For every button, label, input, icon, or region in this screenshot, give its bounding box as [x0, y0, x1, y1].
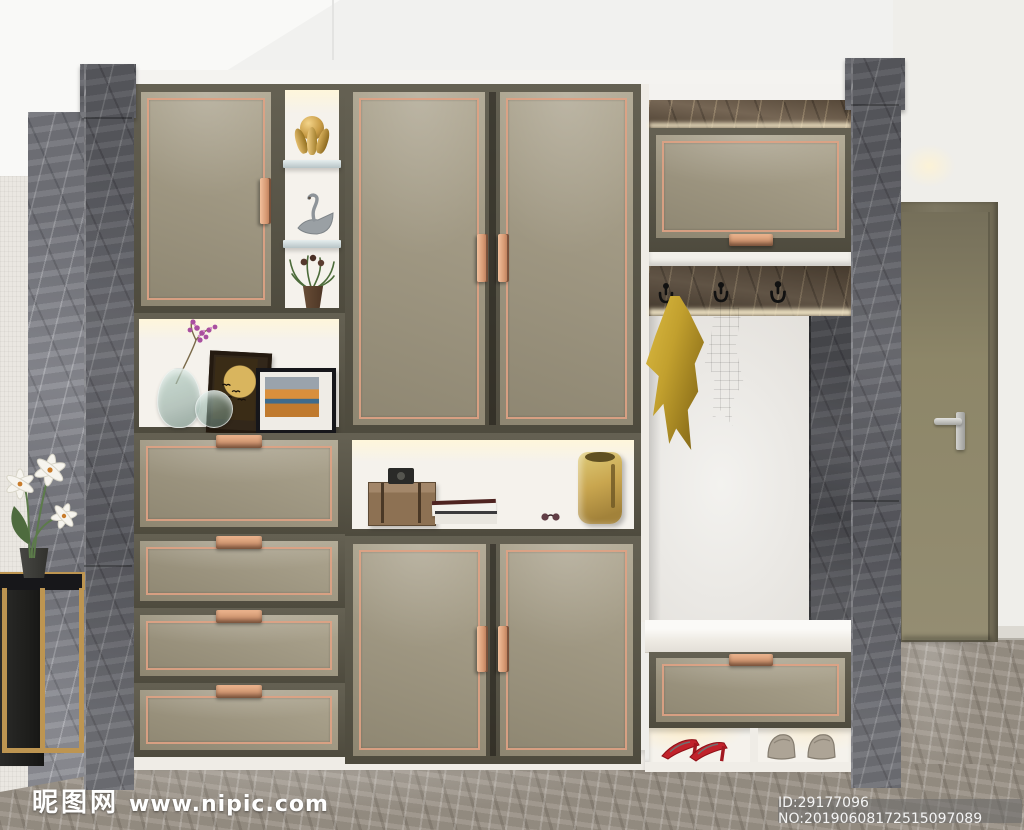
drawer-2: [140, 541, 338, 601]
glass-vase-large: [157, 368, 201, 428]
camera-lens: [397, 472, 405, 480]
bag-strap: [611, 464, 615, 508]
drawer-trim: [146, 696, 332, 744]
lower-door-gap: [490, 544, 496, 756]
white-lily-bouquet: [0, 436, 84, 560]
drawer-4-pull: [216, 685, 262, 698]
led-glow-display-top: [285, 90, 339, 114]
lower-door-right: [500, 544, 633, 756]
door-trim: [506, 98, 627, 419]
wardrobe-door-gap: [489, 92, 496, 425]
shoe-niche-base: [645, 762, 854, 772]
door-bottom-shadow: [902, 636, 992, 642]
artwork-landscape: [265, 377, 319, 417]
drawer-1-pull: [216, 435, 262, 448]
coat-hook-icon: [768, 280, 788, 308]
upper-left-door: [141, 92, 271, 306]
watermark-logo: 昵图网: [32, 782, 119, 819]
lower-door-left: [353, 544, 486, 756]
swan-figurine: [292, 192, 336, 240]
bench-drawer: [656, 658, 845, 722]
bag-opening: [585, 452, 615, 462]
drawer-1: [140, 440, 338, 527]
lower-door-handle-right: [498, 626, 509, 672]
shelf-under-cabinet: [649, 252, 852, 266]
drawer-trim: [662, 664, 839, 716]
recess-marble-column: [809, 316, 854, 622]
door-trim: [506, 550, 627, 750]
lower-door-handle-left: [477, 626, 488, 672]
door-lever-handle: [934, 418, 962, 425]
pillar-right: [851, 58, 901, 788]
pillar-joint: [84, 565, 132, 567]
flap-cabinet-door: [656, 135, 845, 238]
baseboard-right: [995, 626, 1024, 640]
bench-drawer-pull: [729, 654, 773, 666]
drawer-3-pull: [216, 610, 262, 623]
drawer-4: [140, 690, 338, 750]
watermark-url: www.nipic.com: [129, 792, 329, 817]
watermark: 昵图网 www.nipic.com: [32, 782, 329, 819]
door-trim: [147, 98, 265, 300]
id-text: ID:29177096 NO:20190608172515097089: [778, 795, 1022, 827]
id-badge: ID:29177096 NO:20190608172515097089: [778, 799, 1022, 823]
door-trim: [359, 98, 479, 419]
drawer-trim: [146, 621, 332, 670]
interior-door: [902, 212, 990, 640]
gray-loafers: [764, 727, 848, 763]
flap-cabinet-pull: [729, 234, 773, 246]
picture-frame-landscape: [256, 368, 336, 434]
vintage-camera: [388, 468, 414, 484]
cabinet-gable: [641, 84, 649, 622]
pillar-left: [84, 64, 134, 790]
wall-sconce-glow: [895, 138, 971, 200]
wardrobe-door-right: [500, 92, 633, 425]
red-high-heels: [656, 730, 746, 762]
side-table-inner-leg: [40, 588, 45, 748]
door-trim: [359, 550, 480, 750]
pillar-joint: [84, 117, 132, 119]
bench-top: [645, 620, 854, 653]
pillar-joint: [851, 500, 899, 502]
glass-shelf-upper: [283, 160, 341, 168]
drawer-3: [140, 615, 338, 676]
wooden-box: [368, 482, 436, 526]
tote-bag: [578, 452, 622, 524]
drawer-trim: [146, 446, 332, 521]
pillar-joint: [851, 104, 899, 106]
wardrobe-door-left: [353, 92, 485, 425]
upper-left-door-handle: [260, 178, 271, 224]
sunglasses: [538, 512, 564, 522]
shoe-niche-divider: [750, 728, 758, 764]
book-stack-bottom: [435, 511, 497, 524]
door-trim: [662, 141, 839, 232]
drawer-2-pull: [216, 536, 262, 549]
glass-vase-small: [195, 390, 233, 428]
ceiling-seam: [332, 0, 334, 60]
wardrobe-handle-right: [498, 234, 509, 282]
wardrobe-handle-left: [477, 234, 488, 282]
interior-render: 昵图网 www.nipic.com ID:29177096 NO:2019060…: [0, 0, 1024, 830]
glass-shelf-lower: [283, 240, 341, 248]
drawer-trim: [146, 547, 332, 595]
box-strap: [418, 483, 421, 523]
box-strap: [381, 483, 384, 523]
